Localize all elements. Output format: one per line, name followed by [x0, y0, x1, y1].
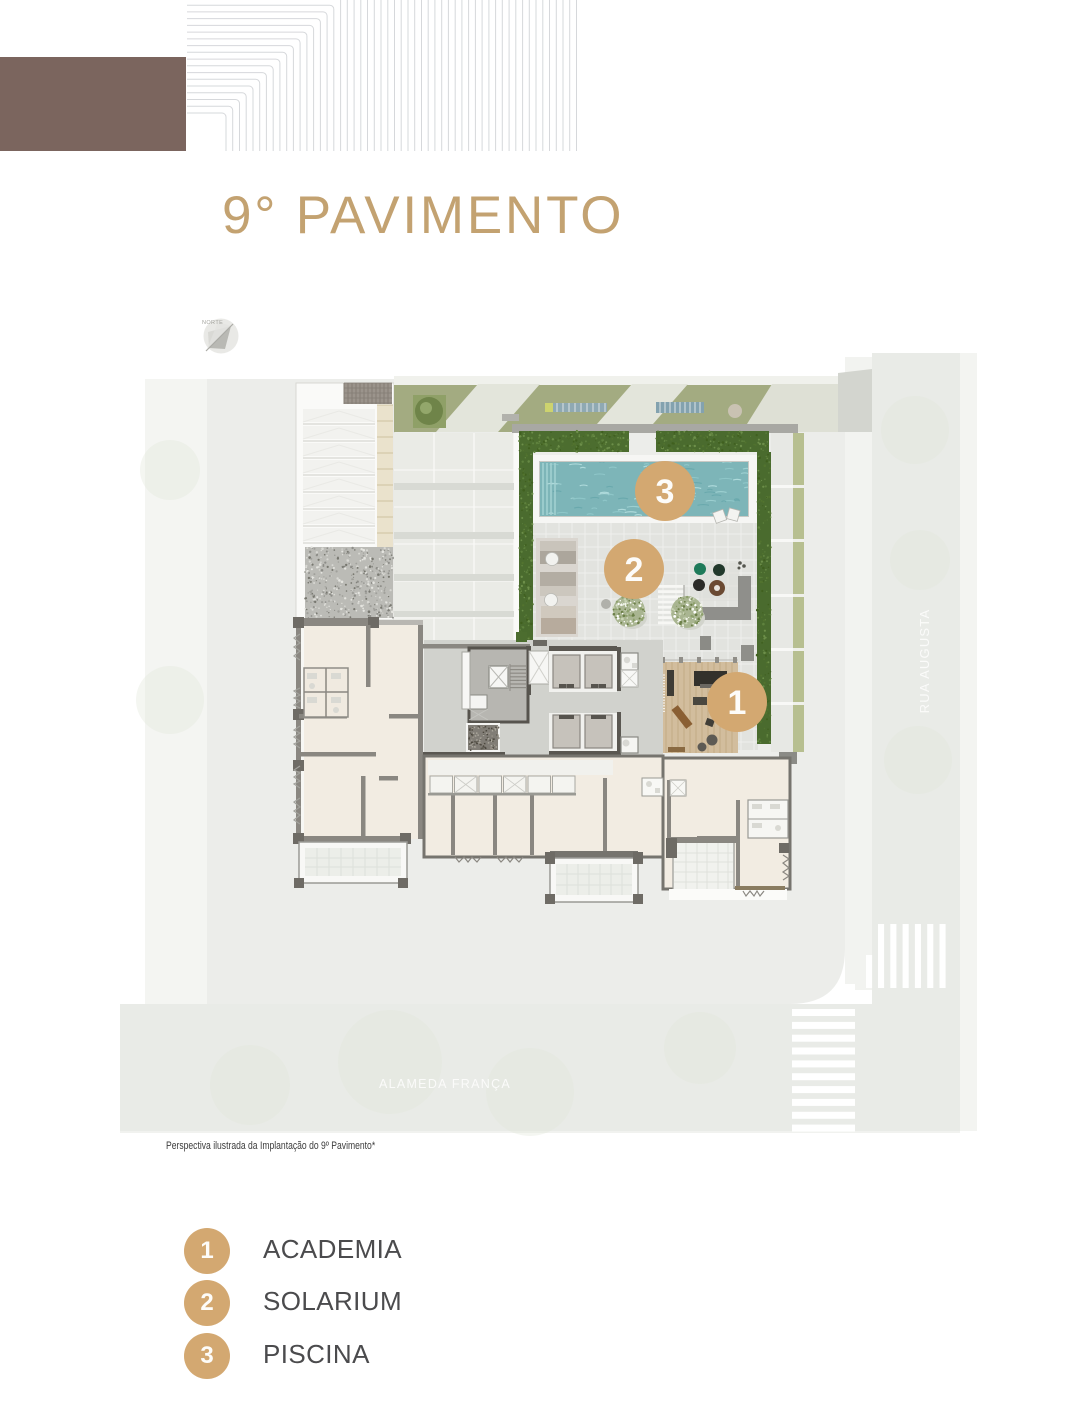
svg-text:NORTE: NORTE: [202, 320, 223, 326]
svg-text:ALAMEDA FRANÇA: ALAMEDA FRANÇA: [379, 1077, 511, 1091]
svg-text:3: 3: [656, 473, 675, 511]
svg-text:2: 2: [625, 551, 644, 589]
svg-text:RUA AUGUSTA: RUA AUGUSTA: [917, 609, 932, 714]
svg-text:1: 1: [728, 684, 747, 722]
